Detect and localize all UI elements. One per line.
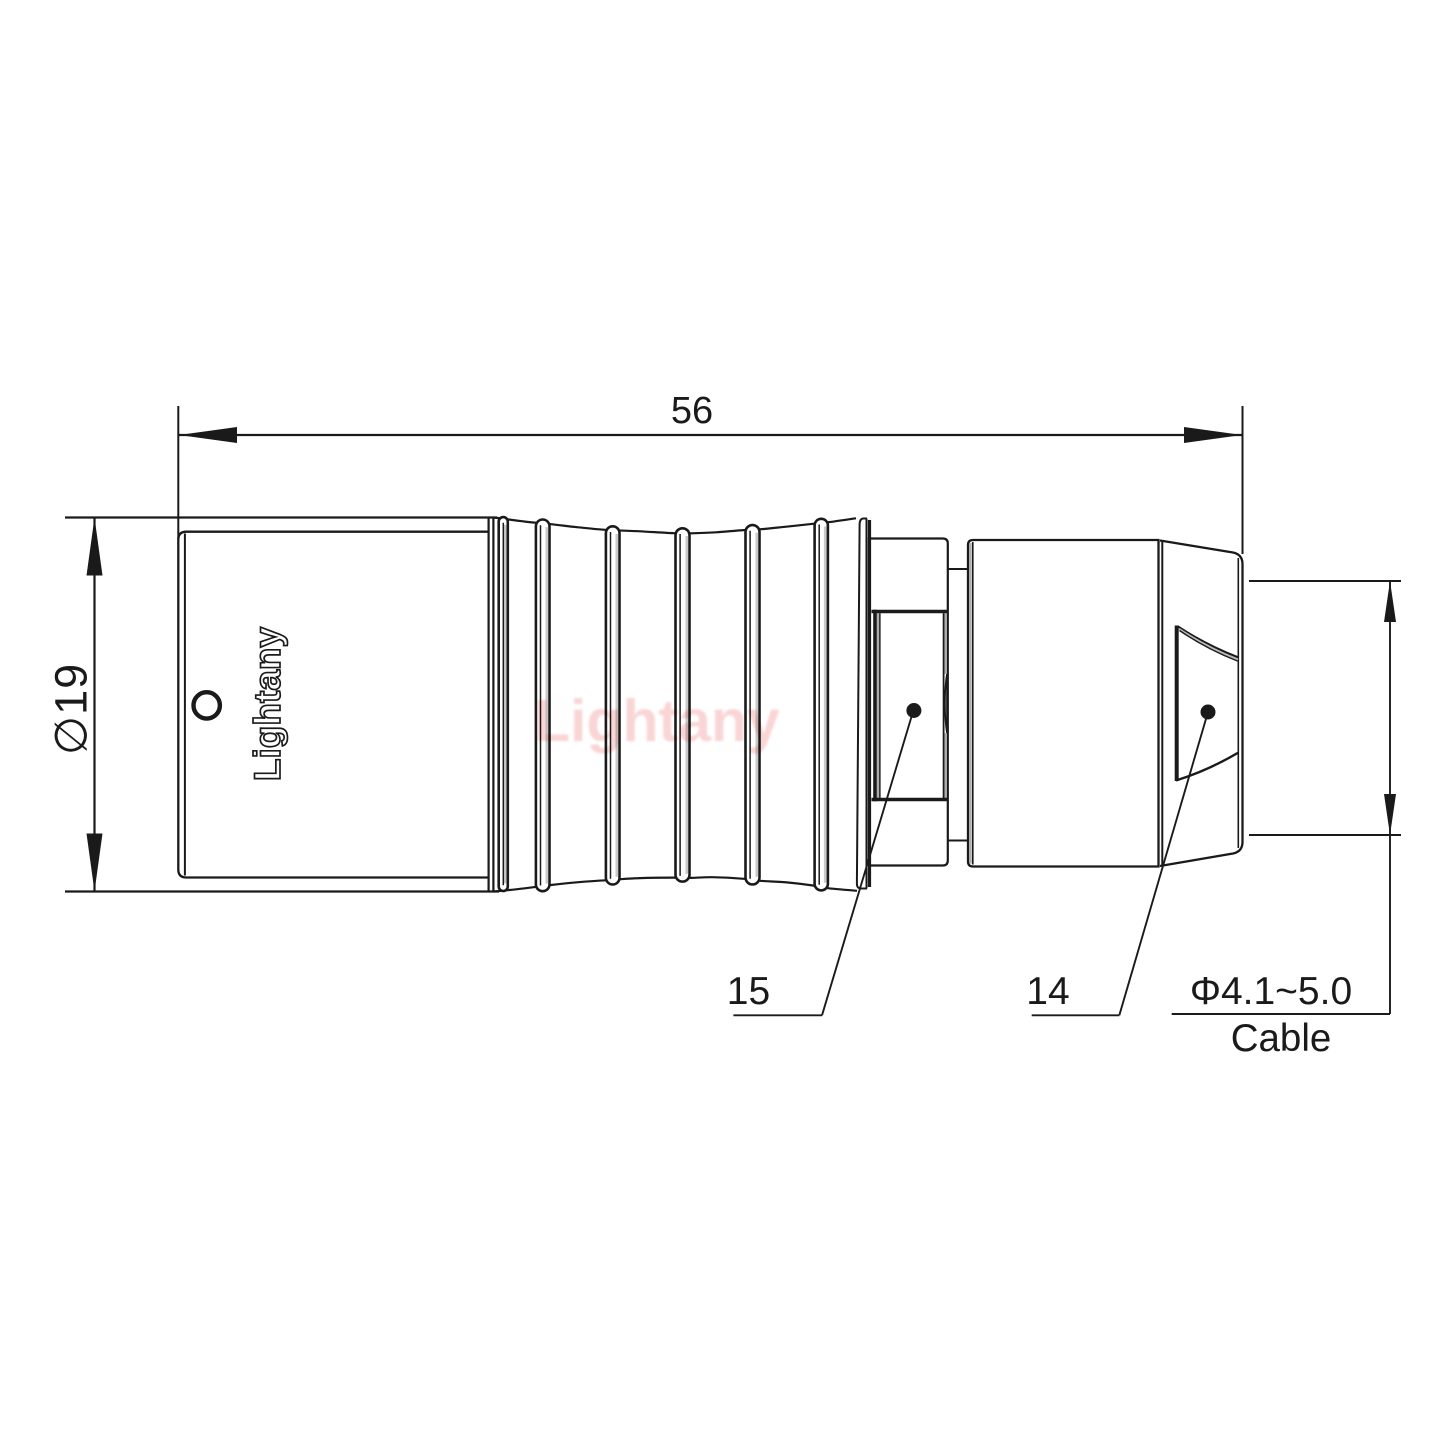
svg-text:14: 14 — [1026, 970, 1069, 1013]
svg-text:∅19: ∅19 — [46, 663, 97, 755]
svg-text:Cable: Cable — [1231, 1017, 1332, 1060]
svg-text:Φ4.1~5.0: Φ4.1~5.0 — [1190, 970, 1352, 1013]
svg-text:Lightany: Lightany — [247, 627, 288, 782]
svg-text:56: 56 — [671, 390, 713, 432]
svg-text:15: 15 — [727, 970, 770, 1013]
